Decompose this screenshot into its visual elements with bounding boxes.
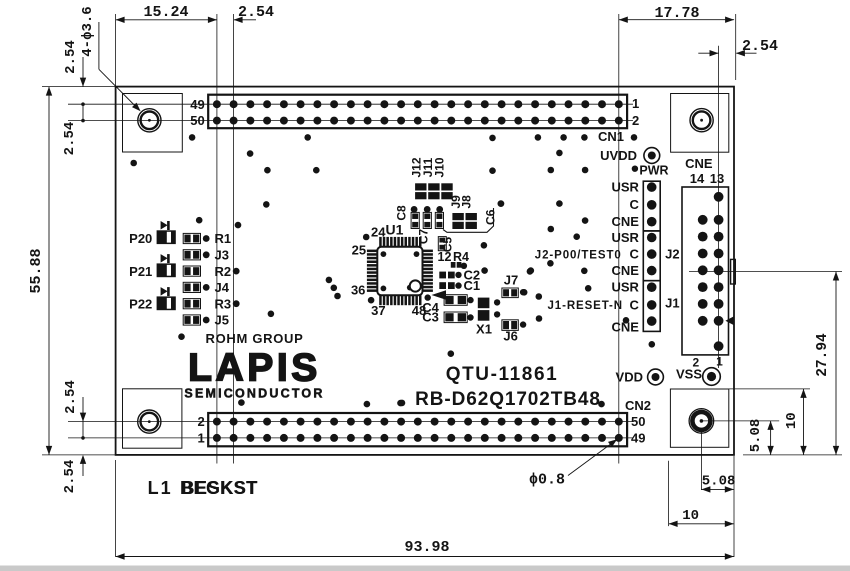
svg-text:36: 36 — [351, 283, 365, 298]
svg-text:X1: X1 — [476, 322, 492, 337]
svg-text:LAPIS: LAPIS — [188, 347, 321, 390]
svg-text:C: C — [630, 297, 640, 312]
svg-text:1: 1 — [632, 96, 639, 111]
svg-text:C8: C8 — [395, 205, 409, 221]
svg-text:2.54: 2.54 — [62, 460, 78, 494]
svg-text:CN2: CN2 — [625, 398, 651, 413]
svg-text:C7: C7 — [417, 229, 431, 245]
svg-text:2: 2 — [693, 356, 700, 370]
svg-text:15.24: 15.24 — [143, 4, 188, 21]
svg-text:USR: USR — [611, 230, 639, 245]
svg-text:27.94: 27.94 — [815, 333, 831, 377]
svg-text:13: 13 — [710, 171, 724, 186]
svg-text:J4: J4 — [215, 280, 230, 295]
svg-text:2.54: 2.54 — [742, 38, 778, 55]
svg-text:2: 2 — [197, 414, 204, 429]
svg-text:BESKST: BESKST — [182, 478, 258, 498]
svg-text:14: 14 — [690, 171, 705, 186]
svg-text:USR: USR — [611, 280, 639, 295]
svg-text:2.54: 2.54 — [63, 40, 79, 74]
svg-text:RB-D62Q1702TB48: RB-D62Q1702TB48 — [415, 389, 601, 410]
svg-text:2.54: 2.54 — [238, 4, 274, 21]
svg-text:P20: P20 — [129, 231, 152, 246]
svg-text:CNE: CNE — [685, 156, 713, 171]
svg-text:12: 12 — [438, 250, 452, 264]
svg-text:50: 50 — [190, 113, 204, 128]
svg-text:ROHM GROUP: ROHM GROUP — [206, 331, 304, 346]
svg-text:J6: J6 — [503, 329, 517, 344]
svg-text:5.08: 5.08 — [748, 419, 764, 453]
svg-text:J2: J2 — [665, 247, 679, 262]
svg-text:CNE: CNE — [611, 263, 639, 278]
svg-text:10: 10 — [784, 412, 800, 429]
svg-text:U1: U1 — [386, 222, 404, 238]
svg-text:ϕ0.8: ϕ0.8 — [529, 472, 565, 489]
svg-text:P22: P22 — [129, 297, 152, 312]
svg-text:2: 2 — [632, 113, 639, 128]
svg-text:25: 25 — [352, 243, 366, 258]
svg-text:C: C — [630, 197, 640, 212]
svg-text:50: 50 — [631, 414, 645, 429]
svg-text:R1: R1 — [215, 231, 232, 246]
svg-text:R2: R2 — [215, 264, 232, 279]
svg-text:J8: J8 — [460, 195, 474, 209]
svg-text:C1: C1 — [464, 278, 481, 293]
svg-text:J5: J5 — [215, 313, 229, 328]
svg-text:C6: C6 — [484, 209, 498, 225]
svg-text:1: 1 — [716, 355, 723, 369]
svg-text:55.88: 55.88 — [28, 248, 45, 293]
svg-text:2.54: 2.54 — [62, 122, 78, 156]
svg-text:R3: R3 — [215, 296, 232, 311]
svg-text:2.54: 2.54 — [63, 380, 79, 414]
svg-text:J7: J7 — [504, 273, 518, 288]
svg-text:QTU-11861: QTU-11861 — [446, 364, 559, 385]
svg-text:5.08: 5.08 — [702, 474, 736, 490]
svg-text:L1: L1 — [148, 478, 173, 498]
svg-text:C3: C3 — [422, 310, 439, 325]
svg-text:10: 10 — [682, 508, 699, 524]
svg-text:1: 1 — [197, 431, 204, 446]
svg-text:24: 24 — [371, 225, 386, 240]
svg-text:93.98: 93.98 — [404, 539, 449, 556]
svg-text:49: 49 — [190, 97, 204, 112]
svg-text:J3: J3 — [215, 248, 229, 263]
svg-text:UVDD: UVDD — [600, 148, 637, 163]
svg-text:J1: J1 — [665, 296, 679, 311]
svg-text:49: 49 — [631, 431, 645, 446]
svg-text:CNE: CNE — [611, 214, 639, 229]
svg-text:R4: R4 — [453, 250, 469, 264]
svg-text:J10: J10 — [432, 157, 446, 177]
svg-text:P21: P21 — [129, 264, 152, 279]
svg-text:4-ϕ3.6: 4-ϕ3.6 — [80, 6, 96, 56]
svg-text:C: C — [630, 247, 640, 262]
svg-text:J1-RESET-N: J1-RESET-N — [548, 300, 623, 312]
svg-text:J2-P00/TEST0: J2-P00/TEST0 — [535, 249, 622, 261]
svg-text:SEMICONDUCTOR: SEMICONDUCTOR — [184, 387, 324, 401]
svg-text:CN1: CN1 — [598, 129, 624, 144]
svg-text:37: 37 — [371, 303, 385, 318]
svg-text:USR: USR — [611, 180, 639, 195]
svg-text:VDD: VDD — [616, 370, 643, 385]
svg-text:PWR: PWR — [639, 163, 668, 177]
